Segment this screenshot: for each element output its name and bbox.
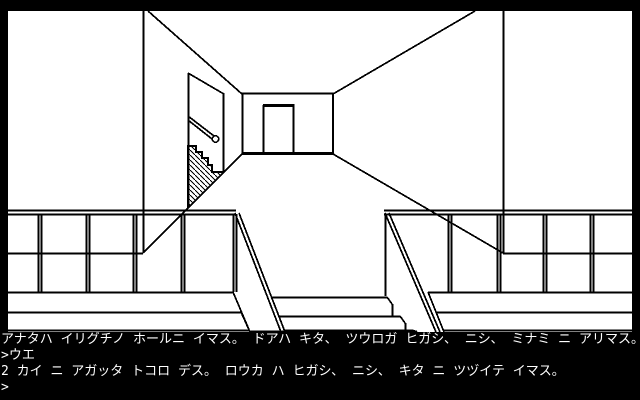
scene-canvas <box>8 11 632 332</box>
narration-line-2: 2 カイ ニ アガッタ トコロ デス。 ロウカ ハ ヒガシ、 ニシ、 キタ ニ … <box>1 364 565 380</box>
player-command-line: >ウエ <box>1 348 35 364</box>
narration-line-1: アナタハ イリグチノ ホールニ イマス。 ドアハ キタ、 ツウロガ ヒガシ、 ニ… <box>1 332 640 348</box>
command-prompt-input[interactable]: > <box>1 380 9 396</box>
handrail-knob <box>212 136 218 142</box>
game-screen: { "colors": { "background": "#000000", "… <box>0 0 640 400</box>
